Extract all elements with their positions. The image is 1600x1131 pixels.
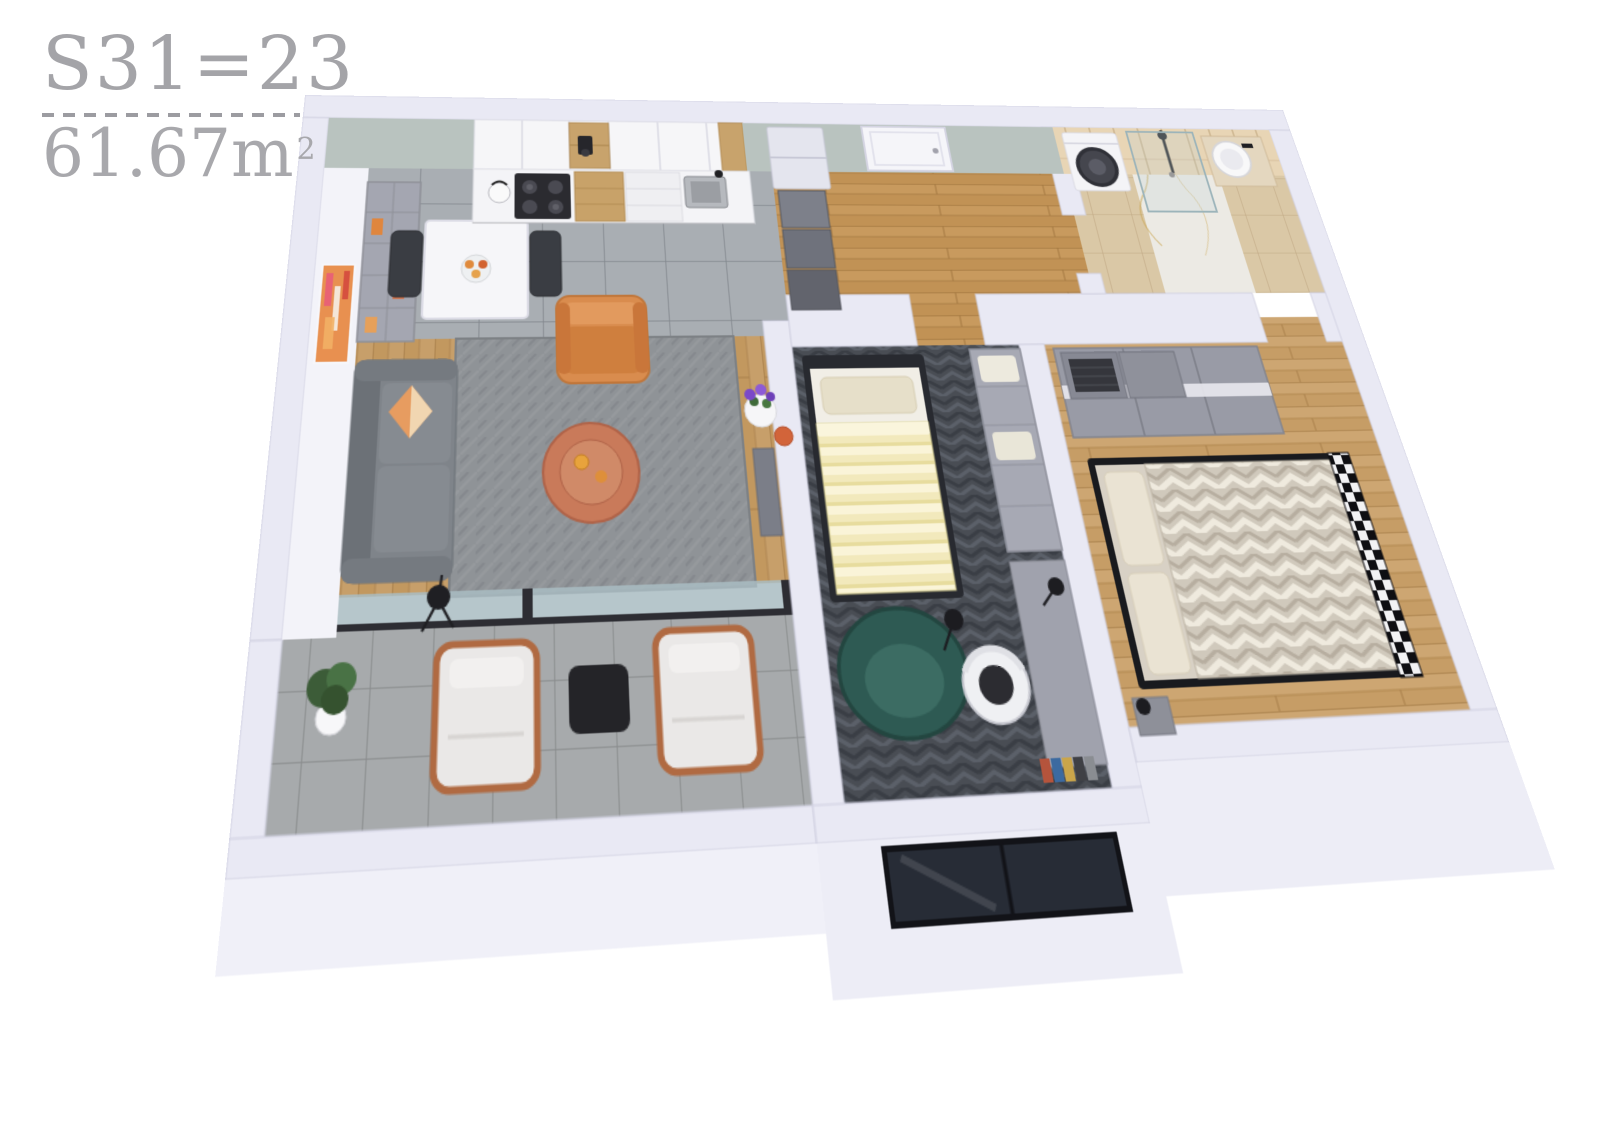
gray-sofa: [340, 359, 458, 584]
area-exponent: 2: [297, 132, 316, 167]
lounge-chair-east: [655, 628, 762, 773]
kitchen-base-units: [473, 168, 755, 224]
lounge-chair-west: [433, 641, 538, 791]
book-row: [1039, 756, 1098, 783]
open-shelves: [625, 172, 683, 221]
apartment-3d-plan: [206, 95, 1585, 1065]
area-number: 61.67: [42, 115, 231, 192]
kitchen-upper-cabinets: [474, 120, 748, 172]
sliding-door-wardrobe: [1053, 346, 1284, 437]
area-unit: m: [231, 115, 294, 192]
kids-bedroom-north-wall-b: [975, 293, 1267, 345]
black-side-table: [568, 664, 630, 735]
plan-title-block: S31=23 61.67m2: [42, 26, 355, 187]
beige-pillow: [820, 376, 918, 414]
entry-door: [861, 127, 953, 172]
fridge: [767, 127, 831, 189]
kids-bedroom-south-face: [817, 823, 1183, 1000]
fruit-bowl: [461, 255, 491, 283]
bathroom-west-wall-b: [1077, 273, 1106, 293]
kettle: [488, 181, 510, 202]
master-bedroom-south-face: [1137, 742, 1555, 896]
floor-plan-stage: S31=23 61.67m2: [0, 0, 1600, 1131]
cooktop: [514, 173, 571, 219]
unit-code: S31=23: [42, 26, 355, 103]
coffee-machine: [578, 136, 593, 157]
area-label: 61.67m2: [42, 121, 355, 187]
dining-chair-west: [388, 231, 423, 297]
orange-armchair: [556, 296, 650, 384]
wood-drawers: [574, 172, 625, 221]
wall-art-orange: [314, 264, 355, 363]
black-faucet: [1241, 144, 1253, 148]
storage-baskets: [1068, 359, 1120, 392]
dining-chair-east: [530, 231, 562, 296]
